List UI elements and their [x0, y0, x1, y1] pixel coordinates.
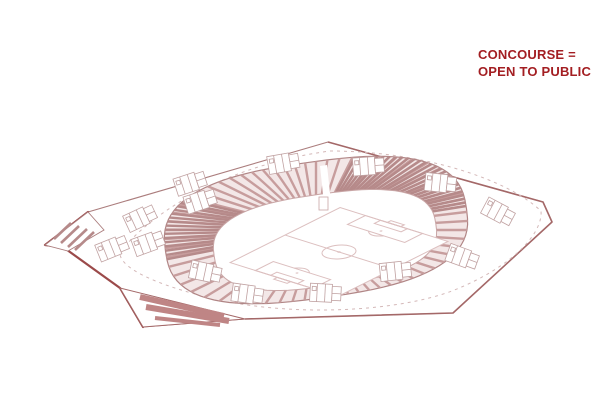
kiosk-body — [267, 153, 292, 175]
stadium-concourse-diagram: CONCOURSE = OPEN TO PUBLIC — [0, 0, 600, 400]
vomitory-stair-box — [319, 197, 328, 210]
annotation-text: CONCOURSE = OPEN TO PUBLIC — [478, 46, 591, 80]
annotation-line-1: CONCOURSE = — [478, 46, 591, 63]
kiosk-body — [352, 157, 375, 176]
annotation-line-2: OPEN TO PUBLIC — [478, 63, 591, 80]
kiosk-body — [231, 283, 255, 304]
kiosk-body — [379, 261, 403, 281]
